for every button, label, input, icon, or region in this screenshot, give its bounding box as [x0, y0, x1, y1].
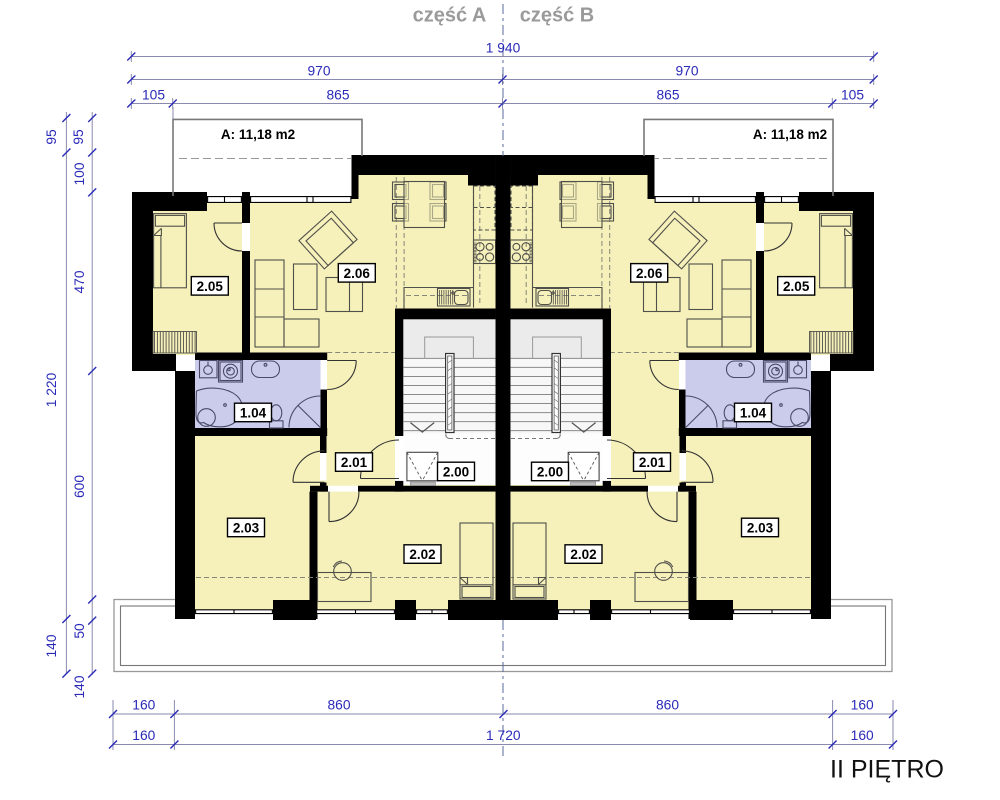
svg-text:2.02: 2.02: [409, 547, 435, 562]
svg-text:2.00: 2.00: [443, 465, 469, 480]
svg-text:160: 160: [132, 698, 155, 713]
svg-text:970: 970: [675, 64, 698, 79]
svg-text:160: 160: [132, 728, 155, 743]
svg-text:2.01: 2.01: [341, 455, 368, 470]
svg-text:A: 11,18 m2: A: 11,18 m2: [753, 127, 827, 142]
svg-text:część B: część B: [520, 5, 595, 27]
svg-text:600: 600: [72, 475, 87, 498]
svg-text:2.05: 2.05: [783, 279, 810, 294]
svg-text:2.05: 2.05: [197, 279, 224, 294]
svg-text:1 940: 1 940: [486, 41, 521, 56]
svg-text:140: 140: [44, 634, 59, 657]
svg-text:2.00: 2.00: [537, 465, 563, 480]
svg-text:2.01: 2.01: [639, 455, 666, 470]
svg-text:105: 105: [841, 88, 864, 103]
svg-text:II PIĘTRO: II PIĘTRO: [830, 756, 944, 784]
svg-text:865: 865: [656, 88, 679, 103]
svg-text:A: 11,18 m2: A: 11,18 m2: [221, 127, 295, 142]
svg-text:95: 95: [71, 129, 86, 145]
svg-text:160: 160: [851, 728, 874, 743]
svg-text:2.06: 2.06: [344, 266, 371, 281]
svg-text:1.04: 1.04: [740, 406, 767, 421]
svg-text:część A: część A: [413, 5, 487, 27]
svg-text:2.02: 2.02: [570, 547, 596, 562]
svg-text:1 220: 1 220: [44, 372, 59, 407]
svg-text:160: 160: [851, 698, 874, 713]
svg-text:95: 95: [44, 129, 59, 145]
svg-text:50: 50: [72, 623, 87, 639]
svg-text:105: 105: [142, 88, 165, 103]
svg-text:2.06: 2.06: [636, 266, 663, 281]
svg-text:2.03: 2.03: [233, 521, 260, 536]
svg-text:1 720: 1 720: [486, 728, 521, 743]
svg-text:470: 470: [72, 270, 87, 293]
svg-text:970: 970: [307, 64, 330, 79]
svg-text:860: 860: [327, 698, 350, 713]
svg-text:1.04: 1.04: [240, 406, 267, 421]
svg-text:865: 865: [326, 88, 349, 103]
svg-text:860: 860: [656, 698, 679, 713]
svg-text:100: 100: [72, 162, 87, 185]
svg-text:140: 140: [72, 675, 87, 698]
svg-text:2.03: 2.03: [747, 521, 774, 536]
